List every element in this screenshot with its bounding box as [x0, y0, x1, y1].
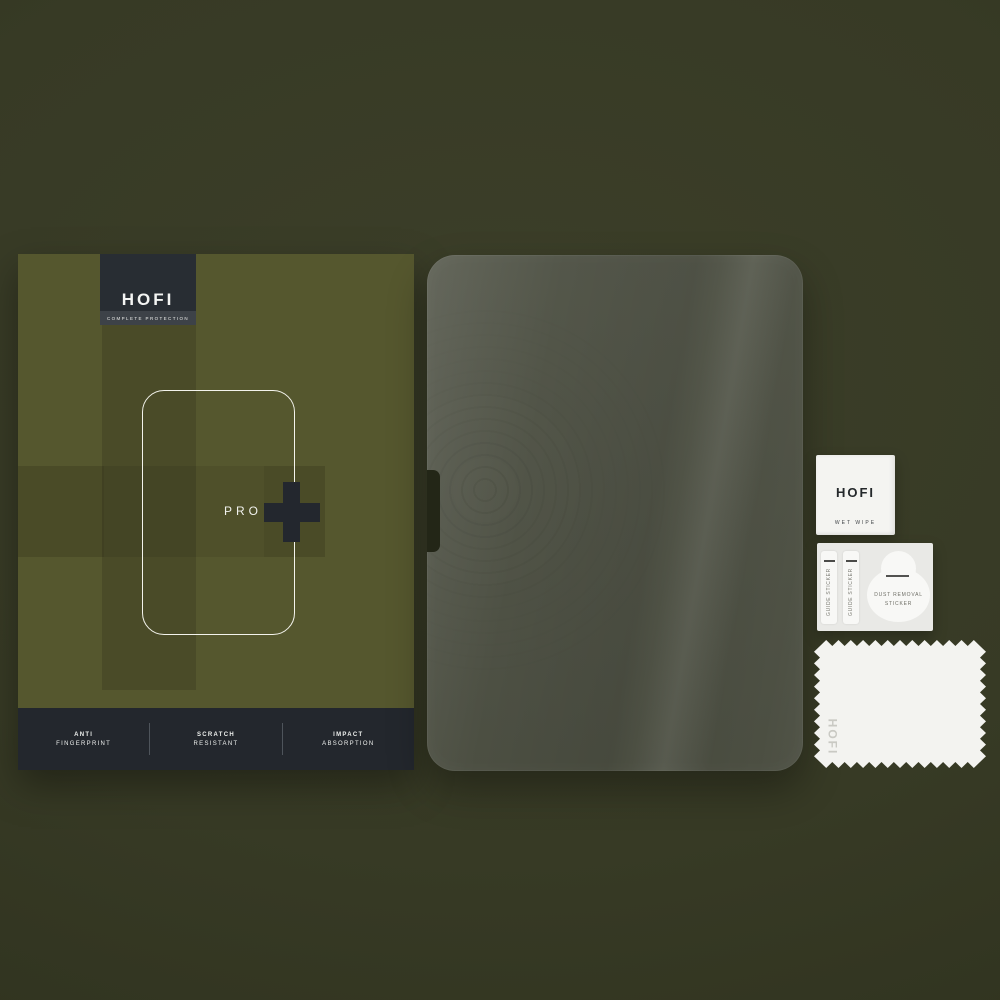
brand-tagline: COMPLETE PROTECTION — [107, 316, 189, 321]
product-photo-canvas: HOFI COMPLETE PROTECTION PRO ANTI FINGER… — [0, 0, 1000, 1000]
brand-logo-background: HOFI — [100, 254, 196, 311]
guide-sticker-label: GUIDE STICKER — [821, 566, 837, 618]
dust-removal-sticker: DUST REMOVAL STICKER — [867, 551, 930, 622]
plus-icon — [283, 482, 300, 542]
brand-tagline-strip: COMPLETE PROTECTION — [100, 311, 196, 325]
sticker-tab-line — [886, 575, 909, 577]
guide-sticker-label: GUIDE STICKER — [843, 566, 859, 618]
microfiber-cloth: HOFI — [814, 640, 986, 768]
sticker-tab-line — [824, 560, 835, 562]
sticker-sheet: GUIDE STICKER GUIDE STICKER DUST REMOVAL… — [817, 543, 933, 631]
feature-line2: FINGERPRINT — [18, 740, 149, 748]
model-name: PRO — [162, 505, 262, 517]
sticker-tab-line — [846, 560, 857, 562]
dust-removal-label: DUST REMOVAL STICKER — [867, 591, 930, 609]
camera-notch — [427, 470, 440, 552]
feature-line2: RESISTANT — [150, 740, 281, 748]
guide-sticker: GUIDE STICKER — [843, 551, 859, 624]
feature-line1: SCRATCH — [150, 730, 281, 740]
brand-logo: HOFI COMPLETE PROTECTION — [100, 254, 196, 325]
feature-line1: ANTI — [18, 730, 149, 740]
wet-wipe-packet: HOFI WET WIPE — [816, 455, 895, 535]
wet-wipe-brand: HOFI — [816, 486, 895, 499]
feature-scratch-resistant: SCRATCH RESISTANT — [150, 730, 281, 749]
feature-anti-fingerprint: ANTI FINGERPRINT — [18, 730, 149, 749]
wet-wipe-label: WET WIPE — [816, 521, 895, 526]
feature-line1: IMPACT — [283, 730, 414, 740]
packaging-box: HOFI COMPLETE PROTECTION PRO ANTI FINGER… — [18, 254, 414, 770]
brand-logo-text: HOFI — [122, 291, 175, 308]
guide-sticker: GUIDE STICKER — [821, 551, 837, 624]
box-cross-left-arm — [18, 466, 104, 557]
cloth-brand-wrap: HOFI — [815, 720, 849, 754]
feature-impact-absorption: IMPACT ABSORPTION — [283, 730, 414, 749]
reflection-streak — [427, 255, 803, 771]
features-bar: ANTI FINGERPRINT SCRATCH RESISTANT IMPAC… — [18, 708, 414, 770]
cloth-brand: HOFI — [826, 719, 838, 756]
glass-screen-protector — [427, 255, 803, 771]
feature-line2: ABSORPTION — [283, 740, 414, 748]
